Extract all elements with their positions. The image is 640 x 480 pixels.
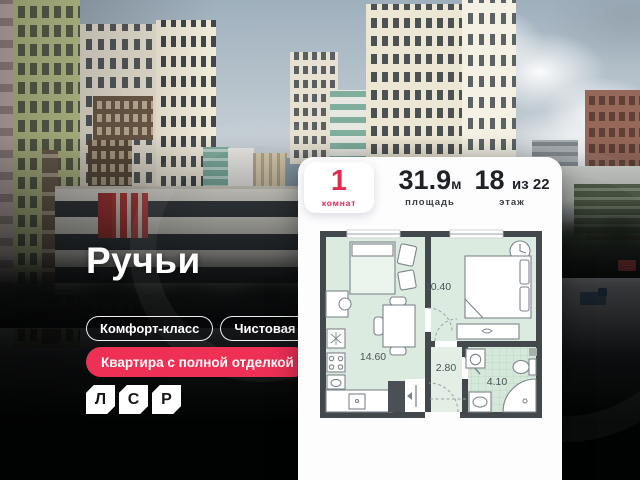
developer-logo-tile-r: Р: [152, 385, 181, 414]
floor-value: 18: [474, 165, 504, 195]
room-area-bedroom: 10.40: [425, 281, 451, 293]
badge-comfort-class[interactable]: Комфорт-класс: [86, 316, 213, 341]
project-title: Ручьи: [86, 240, 201, 282]
floor-hallway: [431, 347, 462, 412]
rooms-stat-box: 1 комнат: [304, 162, 374, 213]
rooms-count: 1: [331, 167, 347, 196]
room-area-bathroom: 4.10: [487, 376, 508, 388]
ad-banner: Ручьи Комфорт-класс Чистовая Квартира с …: [0, 0, 640, 480]
area-unit: м: [451, 176, 461, 192]
room-area-kitchen-living: 14.60: [360, 351, 386, 363]
area-label: площадь: [384, 197, 476, 208]
developer-logo-tile-s: С: [119, 385, 148, 414]
area-stat: 31.9м площадь: [384, 166, 476, 208]
rooms-label: комнат: [322, 198, 356, 208]
room-area-hallway: 2.80: [436, 362, 457, 374]
developer-logo-tile-l: Л: [86, 385, 115, 414]
floor-stat: 18 из 22 этаж: [470, 166, 554, 208]
floor-label: этаж: [470, 197, 554, 208]
badge-row: Комфорт-класс Чистовая: [86, 316, 310, 341]
badge-promo[interactable]: Квартира с полной отделкой: [86, 347, 309, 377]
badge-finish[interactable]: Чистовая: [220, 316, 309, 341]
listing-card[interactable]: 1 комнат 31.9м площадь 18 из 22 этаж: [298, 157, 562, 480]
developer-logo: Л С Р: [86, 385, 181, 414]
area-value: 31.9: [399, 165, 452, 195]
floor-of-total: из 22: [512, 176, 550, 193]
floorplan: 14.60 10.40 2.80 4.10: [317, 229, 545, 421]
